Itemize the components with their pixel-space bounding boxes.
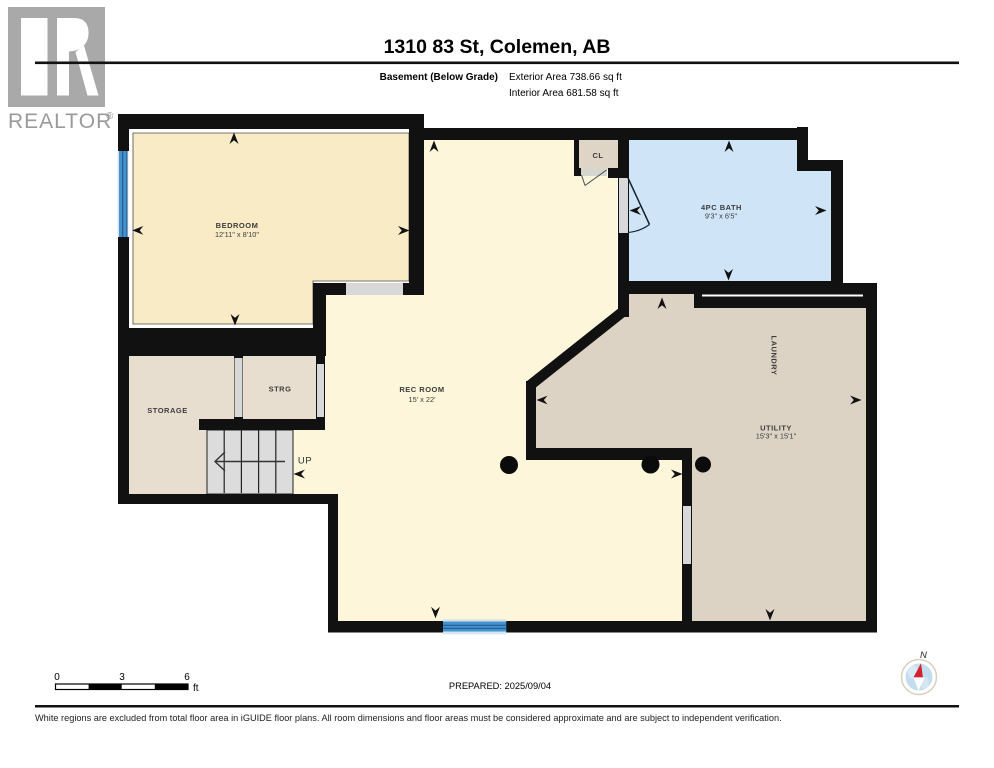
svg-text:15'3" x 15'1": 15'3" x 15'1"	[756, 432, 797, 441]
svg-text:CL: CL	[593, 151, 604, 160]
svg-text:6: 6	[184, 672, 190, 683]
svg-text:STRG: STRG	[269, 385, 292, 394]
svg-text:PREPARED: 2025/09/04: PREPARED: 2025/09/04	[449, 681, 551, 691]
svg-text:0: 0	[54, 672, 60, 683]
svg-text:UP: UP	[298, 456, 312, 467]
svg-text:15' x 22': 15' x 22'	[408, 395, 436, 404]
svg-text:Interior Area 681.58 sq ft: Interior Area 681.58 sq ft	[509, 88, 619, 99]
svg-text:REC ROOM: REC ROOM	[399, 385, 444, 394]
svg-text:BEDROOM: BEDROOM	[216, 221, 259, 230]
svg-text:ft: ft	[193, 683, 199, 694]
svg-text:LAUNDRY: LAUNDRY	[770, 336, 779, 376]
svg-text:White regions are excluded fro: White regions are excluded from total fl…	[35, 713, 782, 723]
svg-text:1310 83 St, Colemen, AB: 1310 83 St, Colemen, AB	[384, 36, 611, 58]
svg-text:N: N	[920, 650, 927, 661]
svg-text:®: ®	[106, 111, 114, 122]
svg-text:3: 3	[119, 672, 125, 683]
svg-text:Exterior Area 738.66 sq ft: Exterior Area 738.66 sq ft	[509, 72, 622, 83]
svg-text:12'11" x 8'10": 12'11" x 8'10"	[215, 230, 259, 239]
svg-text:9'3" x 6'5": 9'3" x 6'5"	[705, 212, 738, 221]
svg-text:STORAGE: STORAGE	[147, 406, 187, 415]
svg-text:REALTOR: REALTOR	[8, 110, 112, 133]
svg-text:Basement (Below Grade): Basement (Below Grade)	[380, 72, 498, 83]
